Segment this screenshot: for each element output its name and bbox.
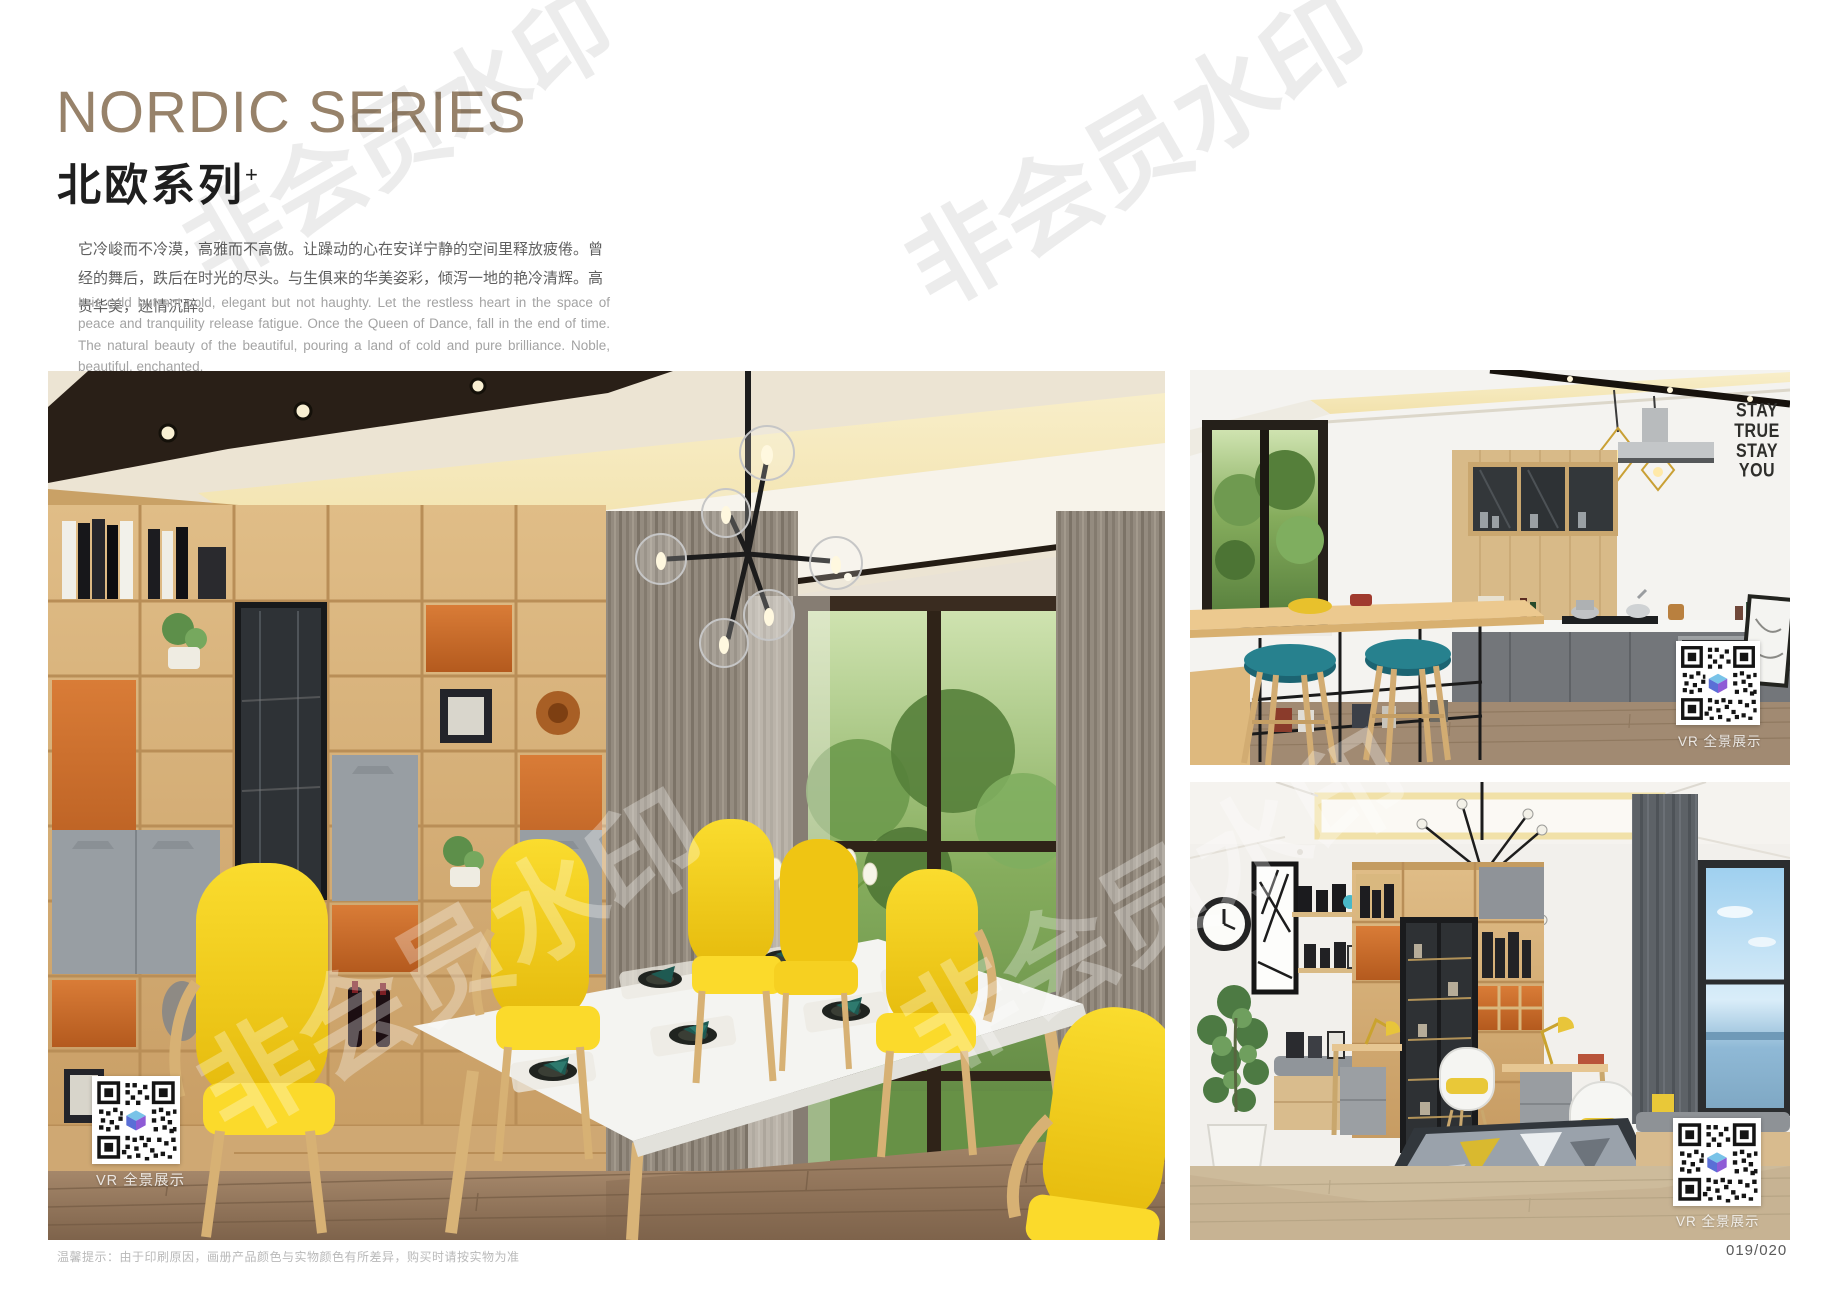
wall-decal-stay-true-stay-you: STAY TRUE STAY YOU bbox=[1726, 402, 1788, 483]
subtitle-superscript: + bbox=[245, 162, 258, 187]
qr-code bbox=[92, 1076, 180, 1164]
curtain bbox=[1632, 794, 1698, 1124]
glass-display-cabinet bbox=[1403, 920, 1475, 1150]
orange-cubbies bbox=[1478, 986, 1542, 1030]
upper-cabinet bbox=[1468, 462, 1618, 536]
footer-disclaimer: 温馨提示：由于印刷原因，画册产品颜色与实物颜色有所差异，购买时请按实物为准 bbox=[57, 1248, 520, 1265]
page-number: 019/020 bbox=[1726, 1242, 1787, 1259]
intro-paragraph-en: It is cold but not cold, elegant but not… bbox=[78, 292, 610, 377]
qr-code bbox=[1673, 1118, 1761, 1206]
dining-room-photo: VR 全景展示 bbox=[48, 371, 1165, 1240]
watermark: 非会员水印 bbox=[891, 0, 1384, 324]
glass-cabinet bbox=[238, 605, 324, 897]
sea-view-window bbox=[1698, 860, 1790, 1116]
vr-panorama-label: VR 全景展示 bbox=[96, 1169, 185, 1190]
decal-line: STAY bbox=[1726, 402, 1788, 422]
subtitle-text: 北欧系列 bbox=[57, 161, 245, 210]
page-subtitle: 北欧系列+ bbox=[57, 164, 258, 208]
page-title: NORDIC SERIES bbox=[56, 84, 527, 142]
kitchen-photo: STAY TRUE STAY YOU VR 全景展示 bbox=[1190, 370, 1790, 765]
qr-code bbox=[1676, 641, 1760, 725]
decal-line: YOU bbox=[1726, 462, 1788, 482]
vr-panorama-label: VR 全景展示 bbox=[1678, 730, 1762, 750]
wall-clock bbox=[1200, 900, 1248, 948]
decal-line: TRUE bbox=[1726, 422, 1788, 442]
study-room-photo: VR 全景展示 bbox=[1190, 782, 1790, 1240]
abstract-art-frame bbox=[1254, 864, 1296, 992]
vr-panorama-label: VR 全景展示 bbox=[1676, 1210, 1760, 1230]
decal-line: STAY bbox=[1726, 442, 1788, 462]
